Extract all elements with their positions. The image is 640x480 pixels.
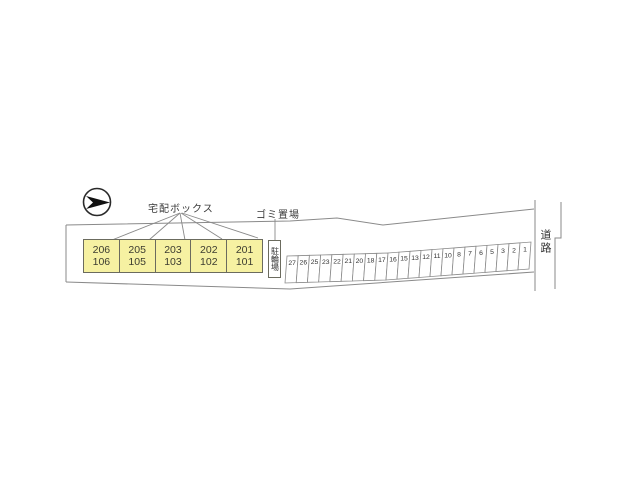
room-202-102: 202 102 [191,240,227,272]
parking-space-number: 3 [501,248,505,255]
room-number-lower: 102 [200,256,218,268]
room-number-lower: 101 [236,256,254,268]
room-201-101: 201 101 [227,240,262,272]
parking-space-number: 21 [344,258,352,265]
parking-space-number: 25 [311,259,319,266]
parking-space-number: 8 [457,252,461,259]
room-206-106: 206 106 [84,240,120,272]
room-number-lower: 105 [128,256,146,268]
parking-space-number: 5 [490,249,494,256]
room-number-upper: 202 [200,244,218,256]
north-arrow-icon [84,189,111,216]
parking-space-number: 11 [433,253,440,260]
parking-space-number: 6 [479,250,483,257]
parking-space-number: 27 [288,260,296,267]
building-block: 206 106 205 105 203 103 202 102 201 101 [83,239,263,273]
bicycle-parking-box: 駐輪場 [268,240,281,278]
parking-space-number: 20 [356,258,364,265]
parking-space-number: 15 [400,256,408,263]
room-205-105: 205 105 [120,240,156,272]
parking-space-number: 2 [512,247,516,254]
parking-space-number: 10 [444,252,452,259]
lot-boundary-top [66,209,534,225]
delivery-box-label: 宅配ボックス [148,200,214,215]
room-number-upper: 203 [164,244,182,256]
room-number-upper: 205 [128,244,146,256]
parking-space-number: 7 [468,251,472,258]
parking-space-number: 22 [333,259,341,266]
parking-space-number: 13 [411,255,419,262]
parking-space-number: 17 [378,257,386,264]
parking-space-number: 26 [300,260,308,267]
room-number-lower: 106 [93,256,111,268]
delivery-box-leader-lines [112,213,258,240]
parking-space-number: 12 [422,254,430,261]
road-label: 道路 [537,229,553,255]
road-edge-right [555,202,561,289]
site-plan: 2726252322212018171615131211108765321 宅配… [0,0,640,480]
parking-space-number: 16 [389,257,397,264]
room-203-103: 203 103 [156,240,192,272]
parking-slot-row: 2726252322212018171615131211108765321 [285,242,531,283]
room-number-lower: 103 [164,256,182,268]
room-number-upper: 201 [236,244,254,256]
parking-space-number: 1 [523,246,527,253]
parking-space-number: 18 [367,258,375,265]
parking-space-number: 23 [322,259,330,266]
room-number-upper: 206 [93,244,111,256]
garbage-area-label: ゴミ置場 [256,206,300,221]
bicycle-parking-label: 駐輪場 [271,247,279,271]
